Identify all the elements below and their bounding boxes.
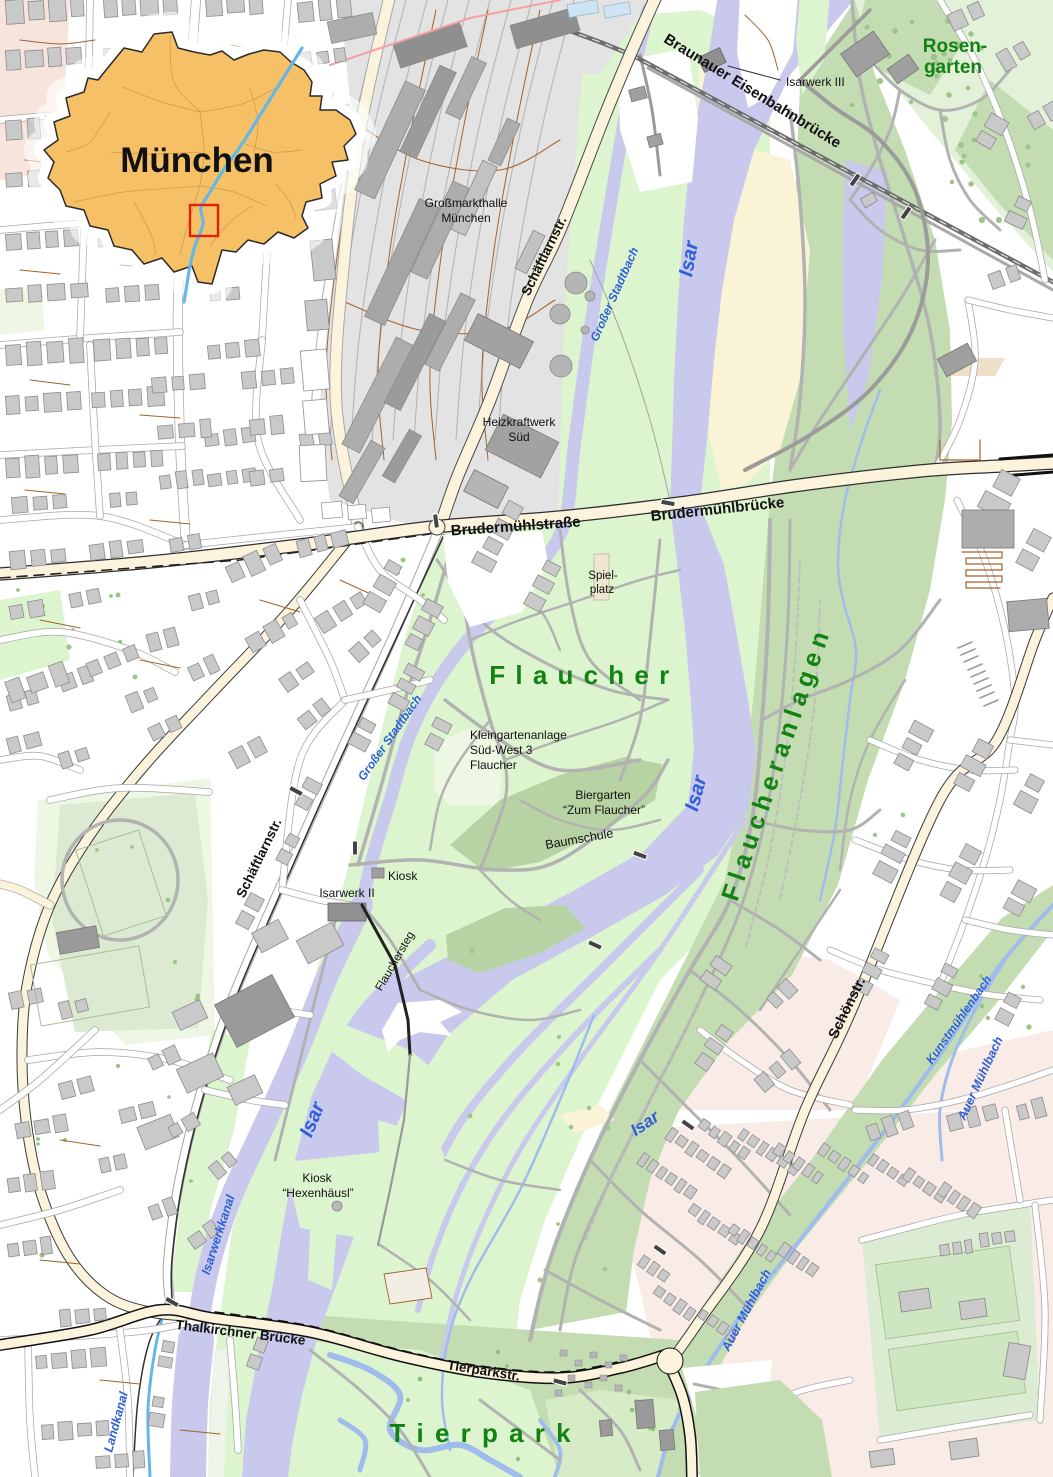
svg-text:Flaucher: Flaucher (470, 758, 517, 772)
svg-text:Rosen-: Rosen- (923, 36, 987, 57)
svg-text:München: München (441, 211, 490, 225)
svg-text:Großmarkthalle: Großmarkthalle (425, 196, 508, 210)
svg-text:Isarwerk III: Isarwerk III (786, 75, 845, 89)
svg-text:Isarwerk II: Isarwerk II (319, 886, 374, 900)
svg-text:Kiosk: Kiosk (388, 869, 418, 883)
svg-text:Spiel-: Spiel- (588, 570, 618, 582)
svg-text:München: München (120, 141, 274, 180)
svg-text:Kleingartenanlage: Kleingartenanlage (470, 728, 567, 742)
svg-text:garten: garten (924, 57, 982, 78)
svg-text:“Zum Flaucher”: “Zum Flaucher” (563, 803, 645, 817)
svg-text:Heizkraftwerk: Heizkraftwerk (483, 415, 557, 429)
svg-text:Süd-West 3: Süd-West 3 (470, 743, 533, 757)
svg-text:Kiosk: Kiosk (302, 1171, 332, 1185)
svg-text:Süd: Süd (508, 430, 529, 444)
svg-text:platz: platz (590, 584, 615, 596)
svg-text:“Hexenhäusl”: “Hexenhäusl” (282, 1186, 353, 1200)
svg-text:T i e r p a r k: T i e r p a r k (389, 1418, 572, 1448)
svg-text:Biergarten: Biergarten (575, 788, 630, 802)
svg-text:F l a u c h e r: F l a u c h e r (489, 660, 670, 690)
